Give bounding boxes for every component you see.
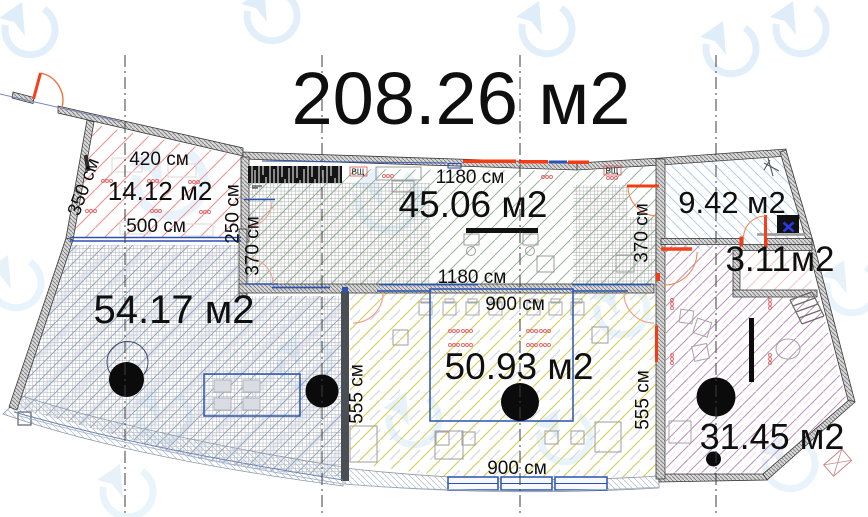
svg-text:45.06 м2: 45.06 м2 [399,184,548,225]
svg-text:50.93 м2: 50.93 м2 [445,346,594,387]
svg-text:9.42 м2: 9.42 м2 [678,185,786,220]
svg-text:900 см: 900 см [487,458,547,479]
svg-text:420 см: 420 см [129,149,189,170]
svg-text:370 см: 370 см [632,203,653,263]
svg-text:900 см: 900 см [485,294,545,315]
svg-text:250 см: 250 см [223,184,244,244]
svg-text:208.26 м2: 208.26 м2 [292,57,631,140]
svg-text:370 см: 370 см [243,216,264,276]
svg-text:1180 см: 1180 см [436,167,505,188]
svg-text:3.11м2: 3.11м2 [725,240,834,279]
svg-text:1180 см: 1180 см [438,267,507,288]
svg-text:ВЩ: ВЩ [606,167,619,176]
svg-text:500 см: 500 см [126,216,186,237]
svg-text:14.12 м2: 14.12 м2 [108,176,213,206]
svg-text:54.17 м2: 54.17 м2 [94,288,255,332]
svg-text:555 см: 555 см [633,370,654,430]
svg-text:555 см: 555 см [347,364,368,424]
svg-text:31.45 м2: 31.45 м2 [700,416,845,457]
svg-text:ВЩ: ВЩ [352,168,365,177]
